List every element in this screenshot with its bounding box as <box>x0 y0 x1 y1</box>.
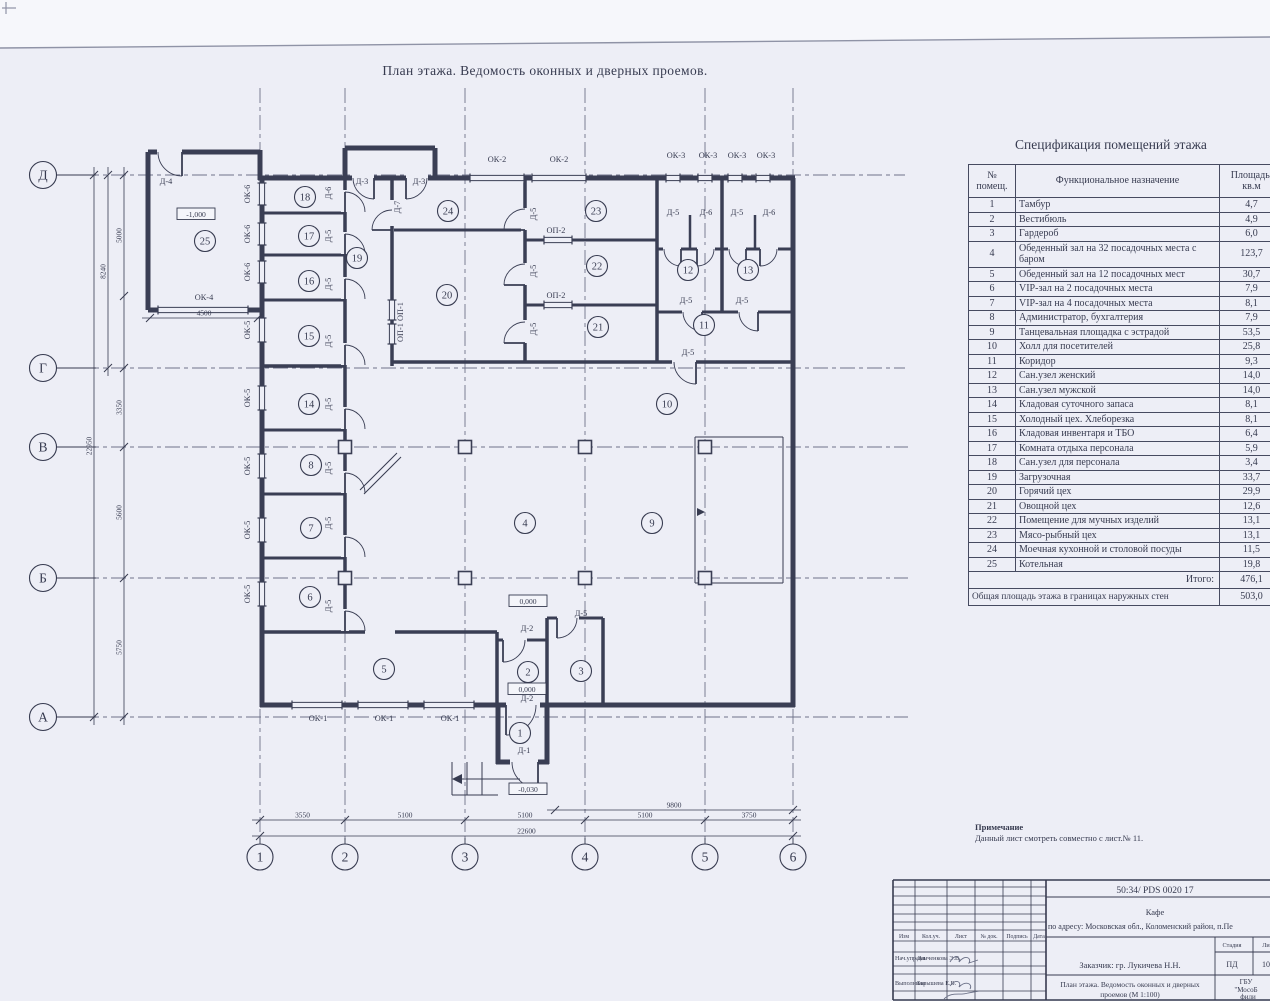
room-purpose: Коридор <box>1016 354 1220 369</box>
window <box>258 386 267 410</box>
spec-row: 4 Обеденный зал на 32 посадочных места с… <box>969 241 1270 267</box>
opening-label: Д-5 <box>682 348 695 357</box>
room-number-text: 14 <box>304 400 315 411</box>
room-number-text: 24 <box>443 207 454 218</box>
opening-label: Д-5 <box>680 296 693 305</box>
column <box>699 441 712 454</box>
title-block-text: План этажа. Ведомость оконных и дверных <box>1060 980 1200 989</box>
room-specification-panel: Спецификация помещений этажа № помещ. Фу… <box>955 137 1267 606</box>
room-number-text: 23 <box>591 207 602 218</box>
room-number: 12 <box>969 369 1016 384</box>
opening-label: Д-5 <box>324 517 333 530</box>
room-area: 14,0 <box>1220 383 1270 398</box>
opening-label: ОК-1 <box>441 714 459 723</box>
opening-label: Д-2 <box>521 694 534 703</box>
room-purpose: Холодный цех. Хлеборезка <box>1016 412 1220 427</box>
spec-row: 1 Тамбур 4,7 <box>969 198 1270 213</box>
room-bubble-1: 1 <box>510 723 531 744</box>
spec-row: 2 Вестибюль 4,9 <box>969 212 1270 227</box>
dimension-text: 5100 <box>638 811 653 820</box>
wall-opening <box>503 636 527 644</box>
window <box>544 301 572 310</box>
level-mark: 0,000 <box>509 595 547 607</box>
opening-label: Д-5 <box>529 208 538 221</box>
room-area: 8,1 <box>1220 412 1270 427</box>
note-heading: Примечание <box>975 822 1143 833</box>
room-bubble-13: 13 <box>738 260 759 281</box>
room-purpose: Вестибюль <box>1016 212 1220 227</box>
room-number: 14 <box>969 398 1016 413</box>
opening-label: Д-1 <box>518 746 531 755</box>
spec-table: № помещ. Функциональное назначение Площа… <box>968 164 1270 606</box>
room-bubble-10: 10 <box>657 394 678 415</box>
room-number: 21 <box>969 499 1016 514</box>
room-area: 11,5 <box>1220 543 1270 558</box>
room-bubble-20: 20 <box>437 285 458 306</box>
room-number: 15 <box>969 412 1016 427</box>
spec-header-row: № помещ. Функциональное назначение Площа… <box>969 165 1270 198</box>
window <box>756 174 770 183</box>
window <box>258 223 267 245</box>
opening-label: Д-5 <box>731 208 744 217</box>
opening-label: Д-5 <box>324 335 333 348</box>
title-block-text: Данченкова Э.В. <box>917 955 961 962</box>
room-area: 30,7 <box>1220 267 1270 282</box>
room-number-text: 3 <box>578 667 583 678</box>
column <box>699 572 712 585</box>
room-bubble-16: 16 <box>299 271 320 292</box>
window <box>728 174 742 183</box>
spec-row: 25 Котельная 19,8 <box>969 557 1270 572</box>
room-purpose: Мясо-рыбный цех <box>1016 528 1220 543</box>
dimension-text: 4500 <box>197 309 212 318</box>
window <box>258 318 267 342</box>
room-number: 20 <box>969 485 1016 500</box>
spec-row: 3 Гардероб 6,0 <box>969 227 1270 242</box>
room-number: 3 <box>969 227 1016 242</box>
opening-label: ОК-2 <box>488 155 506 164</box>
opening-label: ОК-6 <box>243 225 252 243</box>
room-number: 23 <box>969 528 1016 543</box>
title-block-text: по адресу: Московская обл., Коломенский … <box>1048 922 1233 931</box>
grid-bubble-text: В <box>38 440 47 455</box>
wall-opening <box>521 208 529 230</box>
room-number-text: 20 <box>442 291 453 302</box>
title-block-text: Барышева Е.В. <box>917 980 957 987</box>
room-purpose: Горячий цех <box>1016 485 1220 500</box>
title-block-text: Подпись <box>1006 934 1028 940</box>
level-mark: -0,030 <box>509 783 547 795</box>
room-bubble-8: 8 <box>301 455 322 476</box>
room-purpose: Обеденный зал на 32 посадочных места с б… <box>1016 241 1220 267</box>
level-mark-text: -0,030 <box>518 785 538 794</box>
room-number-text: 9 <box>649 519 654 530</box>
room-bubble-15: 15 <box>299 326 320 347</box>
room-number-text: 16 <box>304 277 315 288</box>
grid-bubble-text: 6 <box>790 850 797 865</box>
room-bubble-4: 4 <box>515 513 536 534</box>
level-mark-text: 0,000 <box>519 597 536 606</box>
wall-opening <box>697 245 715 253</box>
room-area: 25,8 <box>1220 340 1270 355</box>
room-number: 18 <box>969 456 1016 471</box>
spec-row: 18 Сан.узел для персонала 3,4 <box>969 456 1270 471</box>
dimension-text: 5100 <box>398 811 413 820</box>
room-bubble-23: 23 <box>586 201 607 222</box>
opening-label: ОК-5 <box>243 521 252 539</box>
opening-label: ОП-1 ОП-1 <box>396 302 405 342</box>
room-purpose: Кладовая инвентаря и ТБО <box>1016 427 1220 442</box>
title-block-text: ПД <box>1226 960 1238 969</box>
opening-label: ОК-5 <box>243 585 252 603</box>
opening-label: ОК-5 <box>243 321 252 339</box>
room-number: 19 <box>969 470 1016 485</box>
room-purpose: Овощной цех <box>1016 499 1220 514</box>
room-area: 6,4 <box>1220 427 1270 442</box>
dimension-text: 22950 <box>85 436 94 455</box>
room-number: 24 <box>969 543 1016 558</box>
room-number-text: 8 <box>308 461 313 472</box>
room-area: 3,4 <box>1220 456 1270 471</box>
room-area: 12,6 <box>1220 499 1270 514</box>
opening-label: Д-5 <box>736 296 749 305</box>
room-area: 7,9 <box>1220 311 1270 326</box>
room-area: 5,9 <box>1220 441 1270 456</box>
opening-label: ОК-5 <box>243 389 252 407</box>
dimension-text: 5750 <box>115 640 124 655</box>
room-number: 5 <box>969 267 1016 282</box>
room-number: 10 <box>969 340 1016 355</box>
room-bubble-6: 6 <box>300 587 321 608</box>
column <box>339 441 352 454</box>
room-purpose: Холл для посетителей <box>1016 340 1220 355</box>
spec-row: 12 Сан.узел женский 14,0 <box>969 369 1270 384</box>
opening-label: ОК-2 <box>550 155 568 164</box>
room-purpose: Тамбур <box>1016 198 1220 213</box>
dimension-text: 22600 <box>517 827 536 836</box>
spec-row: 13 Сан.узел мужской 14,0 <box>969 383 1270 398</box>
wall-opening <box>672 358 696 366</box>
room-area: 4,9 <box>1220 212 1270 227</box>
opening-label: ОК-6 <box>243 185 252 203</box>
room-area: 13,1 <box>1220 528 1270 543</box>
window <box>424 701 474 710</box>
window <box>470 174 524 183</box>
column <box>339 572 352 585</box>
opening-label: Д-3 <box>356 177 369 186</box>
room-area: 33,7 <box>1220 470 1270 485</box>
room-number-text: 22 <box>592 262 603 273</box>
room-number-text: 11 <box>699 321 709 332</box>
window <box>258 518 267 542</box>
window <box>258 261 267 283</box>
room-number-text: 5 <box>381 665 386 676</box>
opening-label: Д-5 <box>324 278 333 291</box>
room-area: 8,1 <box>1220 296 1270 311</box>
opening-label: ОК-4 <box>195 293 214 302</box>
room-purpose: VIP-зал на 2 посадочных места <box>1016 282 1220 297</box>
opening-label: Д-3 <box>413 177 426 186</box>
spec-row: 23 Мясо-рыбный цех 13,1 <box>969 528 1270 543</box>
dimension-text: 5600 <box>115 505 124 520</box>
opening-label: Д-5 <box>324 600 333 613</box>
opening-label: ОК-3 <box>667 151 685 160</box>
room-bubble-19: 19 <box>347 248 368 269</box>
room-number-text: 25 <box>200 237 211 248</box>
room-purpose: Администратор, бухгалтерия <box>1016 311 1220 326</box>
room-purpose: VIP-зал на 4 посадочных места <box>1016 296 1220 311</box>
title-block-text: Изм <box>899 934 909 940</box>
level-mark: -1,000 <box>177 208 215 220</box>
grid-bubble-text: 4 <box>582 850 589 865</box>
room-purpose: Помещение для мучных изделий <box>1016 514 1220 529</box>
spec-row: 21 Овощной цех 12,6 <box>969 499 1270 514</box>
opening-label: ОП-2 <box>547 226 566 235</box>
spec-row: 10 Холл для посетителей 25,8 <box>969 340 1270 355</box>
room-bubble-18: 18 <box>295 187 316 208</box>
room-bubble-22: 22 <box>587 256 608 277</box>
title-block-text: № док. <box>980 934 998 940</box>
window <box>544 236 572 245</box>
room-number: 4 <box>969 241 1016 267</box>
wall-opening <box>728 245 746 253</box>
opening-label: Д-4 <box>160 177 173 186</box>
window <box>532 174 586 183</box>
dimension-text: 3550 <box>295 811 310 820</box>
room-bubble-14: 14 <box>299 394 320 415</box>
opening-label: ОК-3 <box>699 151 717 160</box>
room-purpose: Гардероб <box>1016 227 1220 242</box>
total-label: Итого: <box>969 572 1220 589</box>
grid-bubble-text: 3 <box>462 850 469 865</box>
opening-label: Д-5 <box>324 230 333 243</box>
opening-label: ОК-5 <box>243 457 252 475</box>
title-block-text: фили <box>1240 993 1256 1001</box>
spec-row: 17 Комната отдыха персонала 5,9 <box>969 441 1270 456</box>
room-area: 19,8 <box>1220 557 1270 572</box>
room-area: 8,1 <box>1220 398 1270 413</box>
room-number-text: 21 <box>593 323 604 334</box>
room-purpose: Комната отдыха персонала <box>1016 441 1220 456</box>
room-bubble-3: 3 <box>571 661 592 682</box>
room-number-text: 19 <box>352 254 363 265</box>
opening-label: Д-5 <box>575 609 588 618</box>
title-block-text: Стадия <box>1223 942 1242 949</box>
total-value: 476,1 <box>1220 572 1270 589</box>
column <box>459 441 472 454</box>
grid-bubble-text: 5 <box>702 850 709 865</box>
spec-row: 19 Загрузочная 33,7 <box>969 470 1270 485</box>
window <box>698 174 712 183</box>
room-area: 29,9 <box>1220 485 1270 500</box>
window <box>358 701 408 710</box>
room-number: 2 <box>969 212 1016 227</box>
room-bubble-21: 21 <box>588 317 609 338</box>
title-block-text: проемов (М 1:100) <box>1100 990 1160 999</box>
room-area: 4,7 <box>1220 198 1270 213</box>
wall-opening <box>682 308 702 316</box>
spec-row: 22 Помещение для мучных изделий 13,1 <box>969 514 1270 529</box>
spec-row: 24 Моечная кухонной и столовой посуды 11… <box>969 543 1270 558</box>
room-bubble-25: 25 <box>195 231 216 252</box>
opening-label: Д-6 <box>324 187 333 200</box>
spec-table-title: Спецификация помещений этажа <box>955 137 1267 153</box>
spec-row: 6 VIP-зал на 2 посадочных места 7,9 <box>969 282 1270 297</box>
room-number-text: 7 <box>308 524 313 535</box>
room-number: 1 <box>969 198 1016 213</box>
level-mark: 0,000 <box>508 683 546 695</box>
room-purpose: Котельная <box>1016 557 1220 572</box>
room-area: 6,0 <box>1220 227 1270 242</box>
spec-row: 16 Кладовая инвентаря и ТБО 6,4 <box>969 427 1270 442</box>
opening-label: Д-2 <box>521 624 534 633</box>
note-block: Примечание Данный лист смотреть совместн… <box>975 822 1143 845</box>
spec-row: 5 Обеденный зал на 12 посадочных мест 30… <box>969 267 1270 282</box>
room-purpose: Сан.узел для персонала <box>1016 456 1220 471</box>
room-bubble-11: 11 <box>694 315 715 336</box>
room-number: 25 <box>969 557 1016 572</box>
title-block-text: Заказчик: гр. Лукичева Н.Н. <box>1079 960 1180 970</box>
spec-col-purpose: Функциональное назначение <box>1016 165 1220 198</box>
room-number-text: 2 <box>525 668 530 679</box>
room-area: 14,0 <box>1220 369 1270 384</box>
grid-bubble-text: Г <box>39 361 47 376</box>
room-number-text: 17 <box>304 232 315 243</box>
grid-bubble-text: А <box>38 710 48 725</box>
spec-row: 7 VIP-зал на 4 посадочных места 8,1 <box>969 296 1270 311</box>
grid-bubble-text: Б <box>39 571 47 586</box>
opening-label: ОК-6 <box>243 263 252 281</box>
opening-label: Д-5 <box>529 323 538 336</box>
room-bubble-24: 24 <box>438 201 459 222</box>
room-purpose: Кладовая суточного запаса <box>1016 398 1220 413</box>
room-area: 123,7 <box>1220 241 1270 267</box>
grid-bubble-text: Д <box>38 168 47 183</box>
column <box>459 572 472 585</box>
opening-label: ОК-3 <box>728 151 746 160</box>
room-bubble-9: 9 <box>642 513 663 534</box>
room-number-text: 10 <box>662 400 673 411</box>
spec-row: 9 Танцевальная площадка с эстрадой 53,5 <box>969 325 1270 340</box>
opening-label: Д-5 <box>529 265 538 278</box>
room-number: 16 <box>969 427 1016 442</box>
level-mark-text: -1,000 <box>186 210 206 219</box>
window <box>258 454 267 478</box>
wall-opening <box>521 320 529 343</box>
room-purpose: Загрузочная <box>1016 470 1220 485</box>
room-area: 9,3 <box>1220 354 1270 369</box>
wall-opening <box>521 263 529 285</box>
grid-bubble-text: 1 <box>257 850 264 865</box>
spec-row: 14 Кладовая суточного запаса 8,1 <box>969 398 1270 413</box>
room-number-text: 6 <box>307 593 312 604</box>
room-bubble-2: 2 <box>518 662 539 683</box>
note-text: Данный лист смотреть совместно с лист.№ … <box>975 833 1143 844</box>
spec-row: 11 Коридор 9,3 <box>969 354 1270 369</box>
room-area: 13,1 <box>1220 514 1270 529</box>
opening-label: ОК-1 <box>309 714 327 723</box>
title-block-text: 50:34/ PDS 0020 17 <box>1116 886 1194 896</box>
wall-opening <box>157 148 182 156</box>
column <box>579 572 592 585</box>
room-number: 9 <box>969 325 1016 340</box>
room-number: 13 <box>969 383 1016 398</box>
room-purpose: Сан.узел женский <box>1016 369 1220 384</box>
overall-value: 503,0 <box>1220 589 1270 606</box>
spec-row: 15 Холодный цех. Хлеборезка 8,1 <box>969 412 1270 427</box>
title-block-text: Ли <box>1262 942 1270 949</box>
title-block-text: Кафе <box>1146 907 1165 917</box>
dimension-text: 3350 <box>115 400 124 415</box>
opening-label: Д-6 <box>700 208 713 217</box>
wall-opening <box>738 308 758 316</box>
room-number-text: 1 <box>517 729 522 740</box>
wall-opening <box>663 245 681 253</box>
room-bubble-5: 5 <box>374 659 395 680</box>
window <box>258 582 267 606</box>
room-bubble-7: 7 <box>301 518 322 539</box>
wall-opening <box>365 628 395 636</box>
room-purpose: Танцевальная площадка с эстрадой <box>1016 325 1220 340</box>
opening-label: Д-5 <box>324 462 333 475</box>
title-block-text: Кол.уч. <box>922 934 941 940</box>
title-block-text: Лист <box>955 934 968 940</box>
room-area: 7,9 <box>1220 282 1270 297</box>
drawing-title: План этажа. Ведомость оконных и дверных … <box>285 63 805 79</box>
spec-col-number: № помещ. <box>969 165 1016 198</box>
window <box>666 174 680 183</box>
title-block-text: Дата <box>1033 934 1045 940</box>
room-bubble-17: 17 <box>299 226 320 247</box>
spec-col-area: Площадь, кв.м <box>1220 165 1270 198</box>
opening-label: Д-6 <box>763 208 776 217</box>
room-number: 8 <box>969 311 1016 326</box>
spec-total-row: Итого: 476,1 <box>969 572 1270 589</box>
opening-label: Д-5 <box>667 208 680 217</box>
room-number: 7 <box>969 296 1016 311</box>
room-number-text: 13 <box>743 266 754 277</box>
dimension-text: 5100 <box>518 811 533 820</box>
scanned-drawing-sheet: { "sheet": { "title": "План этажа. Ведом… <box>0 0 1270 1001</box>
dimension-text: 3750 <box>742 811 757 820</box>
room-number-text: 15 <box>304 332 315 343</box>
room-number-text: 4 <box>522 519 528 530</box>
opening-label: ОК-3 <box>757 151 775 160</box>
room-number: 6 <box>969 282 1016 297</box>
room-number-text: 18 <box>300 193 311 204</box>
room-purpose: Сан.узел мужской <box>1016 383 1220 398</box>
grid-bubble-text: 2 <box>342 850 349 865</box>
column <box>579 441 592 454</box>
opening-label: ОК-1 <box>375 714 393 723</box>
level-mark-text: 0,000 <box>518 685 535 694</box>
room-bubble-12: 12 <box>678 260 699 281</box>
wall-opening <box>760 245 778 253</box>
room-area: 53,5 <box>1220 325 1270 340</box>
opening-label: Д-5 <box>324 398 333 411</box>
window <box>292 701 342 710</box>
dimension-text: 5000 <box>115 228 124 243</box>
window <box>258 183 267 205</box>
opening-label: Д-7 <box>393 201 402 214</box>
opening-label: ОП-2 <box>547 291 566 300</box>
dimension-text: 8240 <box>99 264 108 279</box>
room-number: 22 <box>969 514 1016 529</box>
overall-label: Общая площадь этажа в границах наружных … <box>969 589 1220 606</box>
room-purpose: Обеденный зал на 12 посадочных мест <box>1016 267 1220 282</box>
room-number-text: 12 <box>683 266 694 277</box>
spec-overall-row: Общая площадь этажа в границах наружных … <box>969 589 1270 606</box>
